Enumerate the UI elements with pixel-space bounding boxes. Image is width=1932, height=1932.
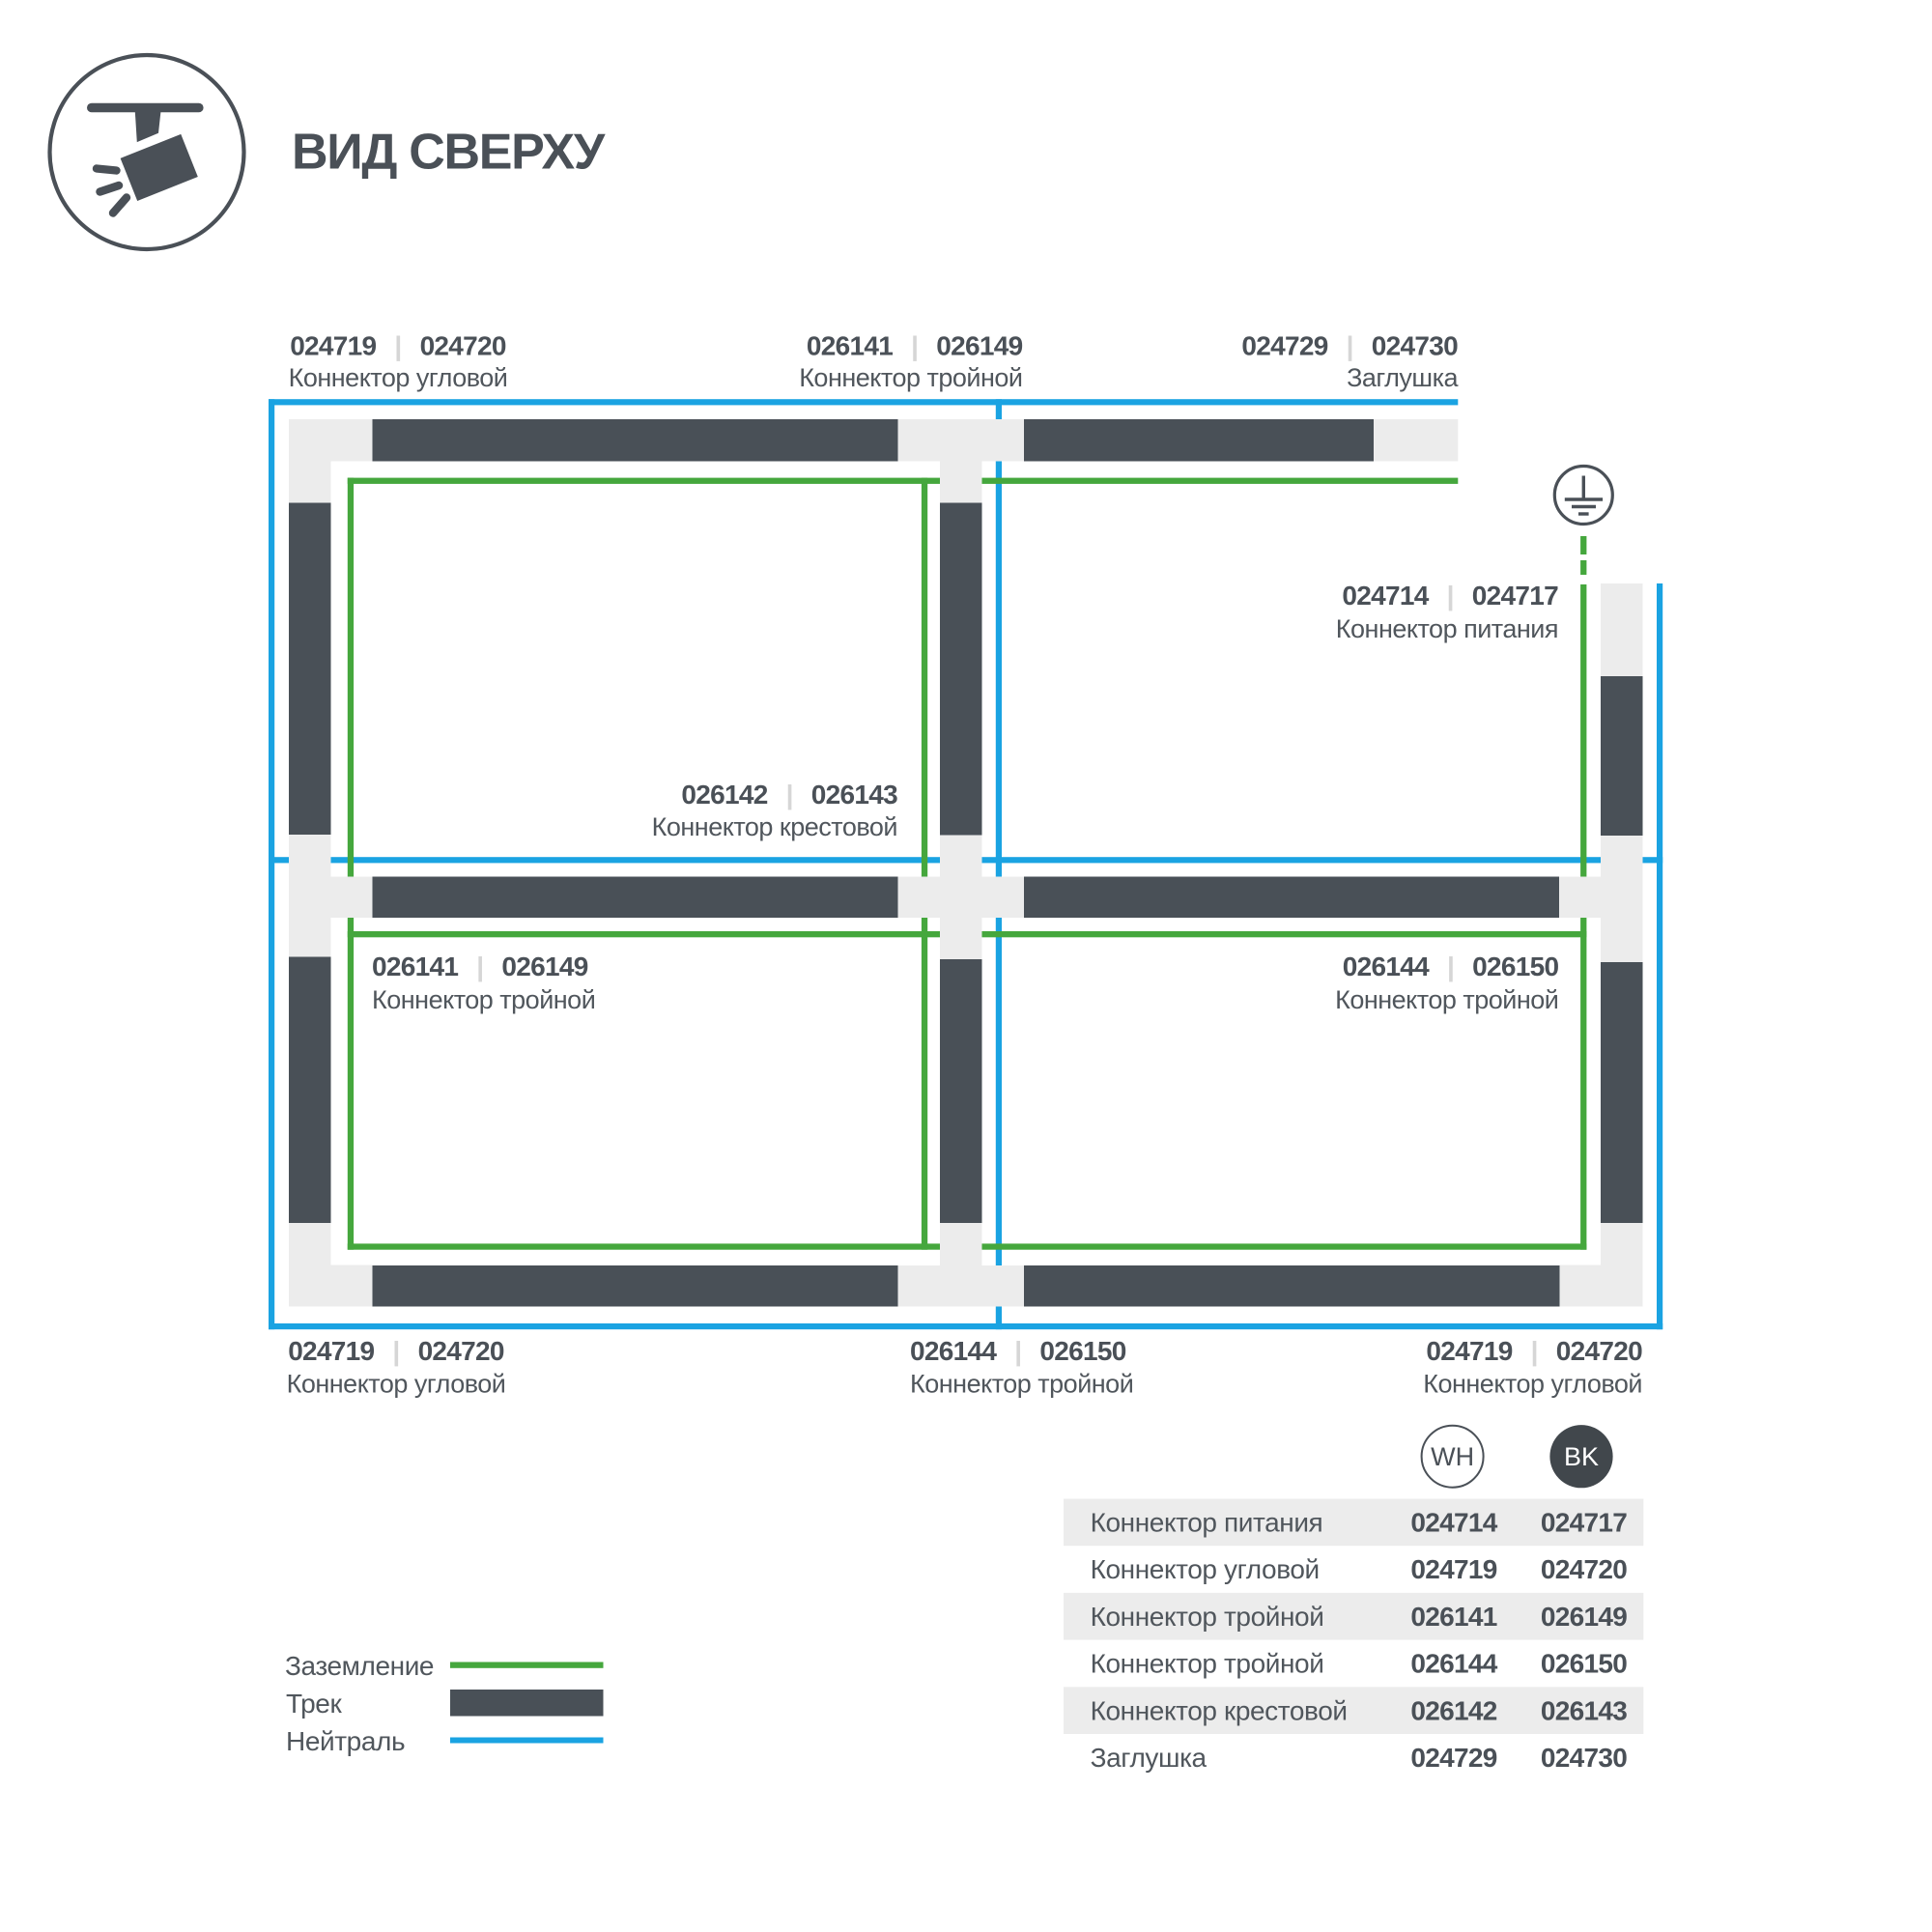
- svg-text:024714|024717: 024714|024717: [1342, 581, 1558, 611]
- svg-text:Коннектор угловой: Коннектор угловой: [1091, 1554, 1320, 1584]
- svg-text:024719|024720: 024719|024720: [1426, 1336, 1642, 1366]
- svg-text:026141: 026141: [1410, 1602, 1496, 1632]
- svg-text:Коннектор тройной: Коннектор тройной: [1091, 1602, 1324, 1632]
- svg-text:026142|026143: 026142|026143: [681, 780, 897, 810]
- svg-text:Заглушка: Заглушка: [1091, 1743, 1207, 1773]
- svg-text:Заглушка: Заглушка: [1347, 363, 1459, 392]
- svg-text:Заземление: Заземление: [285, 1651, 434, 1681]
- svg-text:024729|024730: 024729|024730: [1241, 331, 1458, 361]
- svg-text:Коннектор тройной: Коннектор тройной: [1335, 985, 1558, 1014]
- svg-text:Коннектор крестовой: Коннектор крестовой: [1091, 1695, 1348, 1725]
- svg-text:Коннектор тройной: Коннектор тройной: [799, 363, 1022, 392]
- svg-text:026144|026150: 026144|026150: [910, 1336, 1126, 1366]
- svg-text:024730: 024730: [1541, 1743, 1627, 1773]
- svg-text:Коннектор крестовой: Коннектор крестовой: [652, 812, 897, 841]
- svg-text:026141|026149: 026141|026149: [807, 331, 1023, 361]
- svg-text:Коннектор угловой: Коннектор угловой: [287, 1370, 506, 1399]
- svg-text:Коннектор питания: Коннектор питания: [1336, 614, 1558, 643]
- svg-text:026143: 026143: [1541, 1695, 1627, 1725]
- svg-text:024714: 024714: [1410, 1508, 1497, 1538]
- svg-text:BK: BK: [1564, 1442, 1599, 1471]
- svg-text:026142: 026142: [1410, 1695, 1496, 1725]
- svg-text:026150: 026150: [1541, 1649, 1627, 1679]
- svg-text:024719: 024719: [1410, 1554, 1496, 1584]
- svg-text:WH: WH: [1431, 1442, 1474, 1471]
- svg-text:024720: 024720: [1541, 1554, 1627, 1584]
- svg-text:024729: 024729: [1410, 1743, 1496, 1773]
- svg-text:026144: 026144: [1410, 1649, 1497, 1679]
- svg-text:024719|024720: 024719|024720: [290, 331, 506, 361]
- svg-text:Нейтраль: Нейтраль: [286, 1726, 405, 1756]
- svg-text:026141|026149: 026141|026149: [372, 952, 588, 981]
- svg-text:024719|024720: 024719|024720: [288, 1336, 504, 1366]
- svg-text:Коннектор тройной: Коннектор тройной: [372, 985, 595, 1014]
- svg-text:Коннектор угловой: Коннектор угловой: [289, 363, 508, 392]
- svg-text:Коннектор тройной: Коннектор тройной: [910, 1370, 1133, 1399]
- svg-text:026149: 026149: [1541, 1602, 1627, 1632]
- svg-text:024717: 024717: [1541, 1508, 1627, 1538]
- svg-text:Коннектор угловой: Коннектор угловой: [1423, 1370, 1642, 1399]
- svg-text:ВИД СВЕРХУ: ВИД СВЕРХУ: [292, 125, 606, 181]
- svg-text:026144|026150: 026144|026150: [1343, 952, 1559, 981]
- svg-text:Коннектор тройной: Коннектор тройной: [1091, 1649, 1324, 1679]
- svg-text:Трек: Трек: [286, 1689, 342, 1719]
- svg-text:Коннектор питания: Коннектор питания: [1091, 1508, 1323, 1538]
